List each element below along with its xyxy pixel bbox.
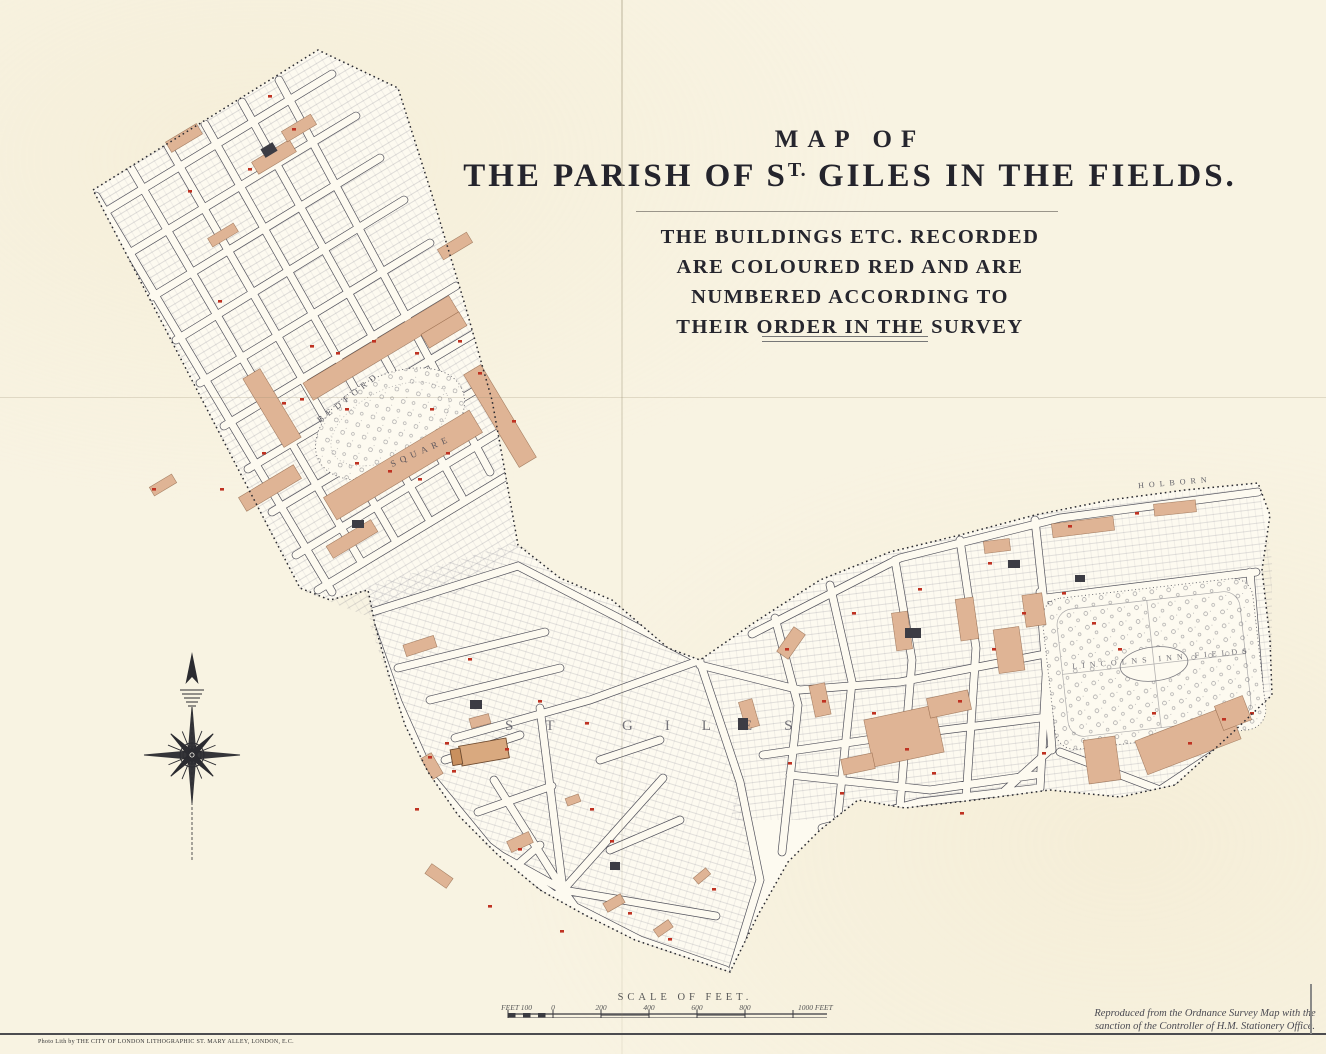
subtitle-line-2: ARE COLOURED RED AND ARE [540, 252, 1160, 282]
map-sheet: { "header": { "map_of": "MAP OF", "title… [0, 0, 1326, 1054]
scale-tick-400: 400 [643, 1003, 654, 1012]
sheet-frame-bottom [0, 1033, 1326, 1035]
sheet-frame-right [1310, 984, 1312, 1034]
page-title: THE PARISH OF ST. GILES IN THE FIELDS. [400, 158, 1300, 195]
os-attribution: Reproduced from the Ordnance Survey Map … [1080, 1008, 1326, 1033]
scale-label-1000-feet: 1000 FEET [798, 1003, 833, 1012]
scale-bar [508, 1010, 827, 1018]
scale-tick-200: 200 [595, 1003, 606, 1012]
attribution-line-1: Reproduced from the Ordnance Survey Map … [1080, 1008, 1326, 1021]
scale-tick-0: 0 [551, 1003, 555, 1012]
printer-imprint: Photo Lith by THE CITY OF LONDON LITHOGR… [38, 1039, 294, 1045]
map-of-heading: MAP OF [430, 126, 1270, 154]
subtitle-line-1: THE BUILDINGS ETC. RECORDED [540, 222, 1160, 252]
paper-fold-horizontal [0, 397, 1326, 398]
paper-fold-vertical [621, 0, 623, 1054]
scale-label-feet-100: FEET 100 [442, 1003, 532, 1012]
subtitle-rule [762, 336, 928, 342]
subtitle-note: THE BUILDINGS ETC. RECORDED ARE COLOURED… [540, 222, 1160, 342]
compass-rose [144, 652, 240, 862]
title-pre: THE PARISH OF S [463, 158, 788, 194]
title-rule [636, 211, 1058, 212]
scale-tick-800: 800 [739, 1003, 750, 1012]
attribution-line-2: sanction of the Controller of H.M. Stati… [1080, 1021, 1326, 1034]
scale-tick-600: 600 [691, 1003, 702, 1012]
subtitle-line-3: NUMBERED ACCORDING TO [540, 282, 1160, 312]
title-post: GILES IN THE FIELDS. [807, 158, 1237, 194]
title-superscript: T. [788, 159, 807, 181]
scale-bar-title: SCALE OF FEET. [540, 992, 830, 1003]
district-label-st-giles: ST GILES [505, 718, 824, 735]
